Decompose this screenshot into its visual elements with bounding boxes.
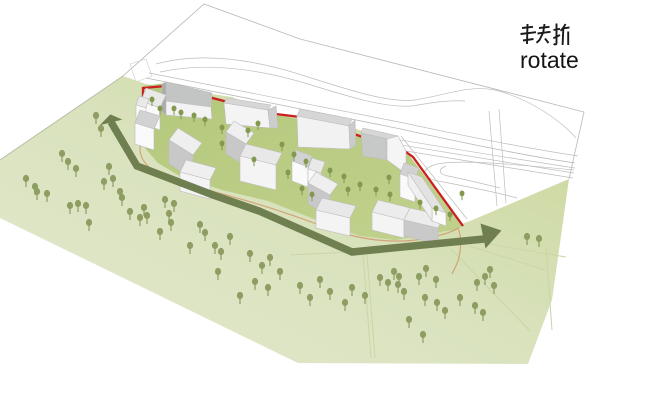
svg-text:rotate: rotate xyxy=(520,47,579,73)
